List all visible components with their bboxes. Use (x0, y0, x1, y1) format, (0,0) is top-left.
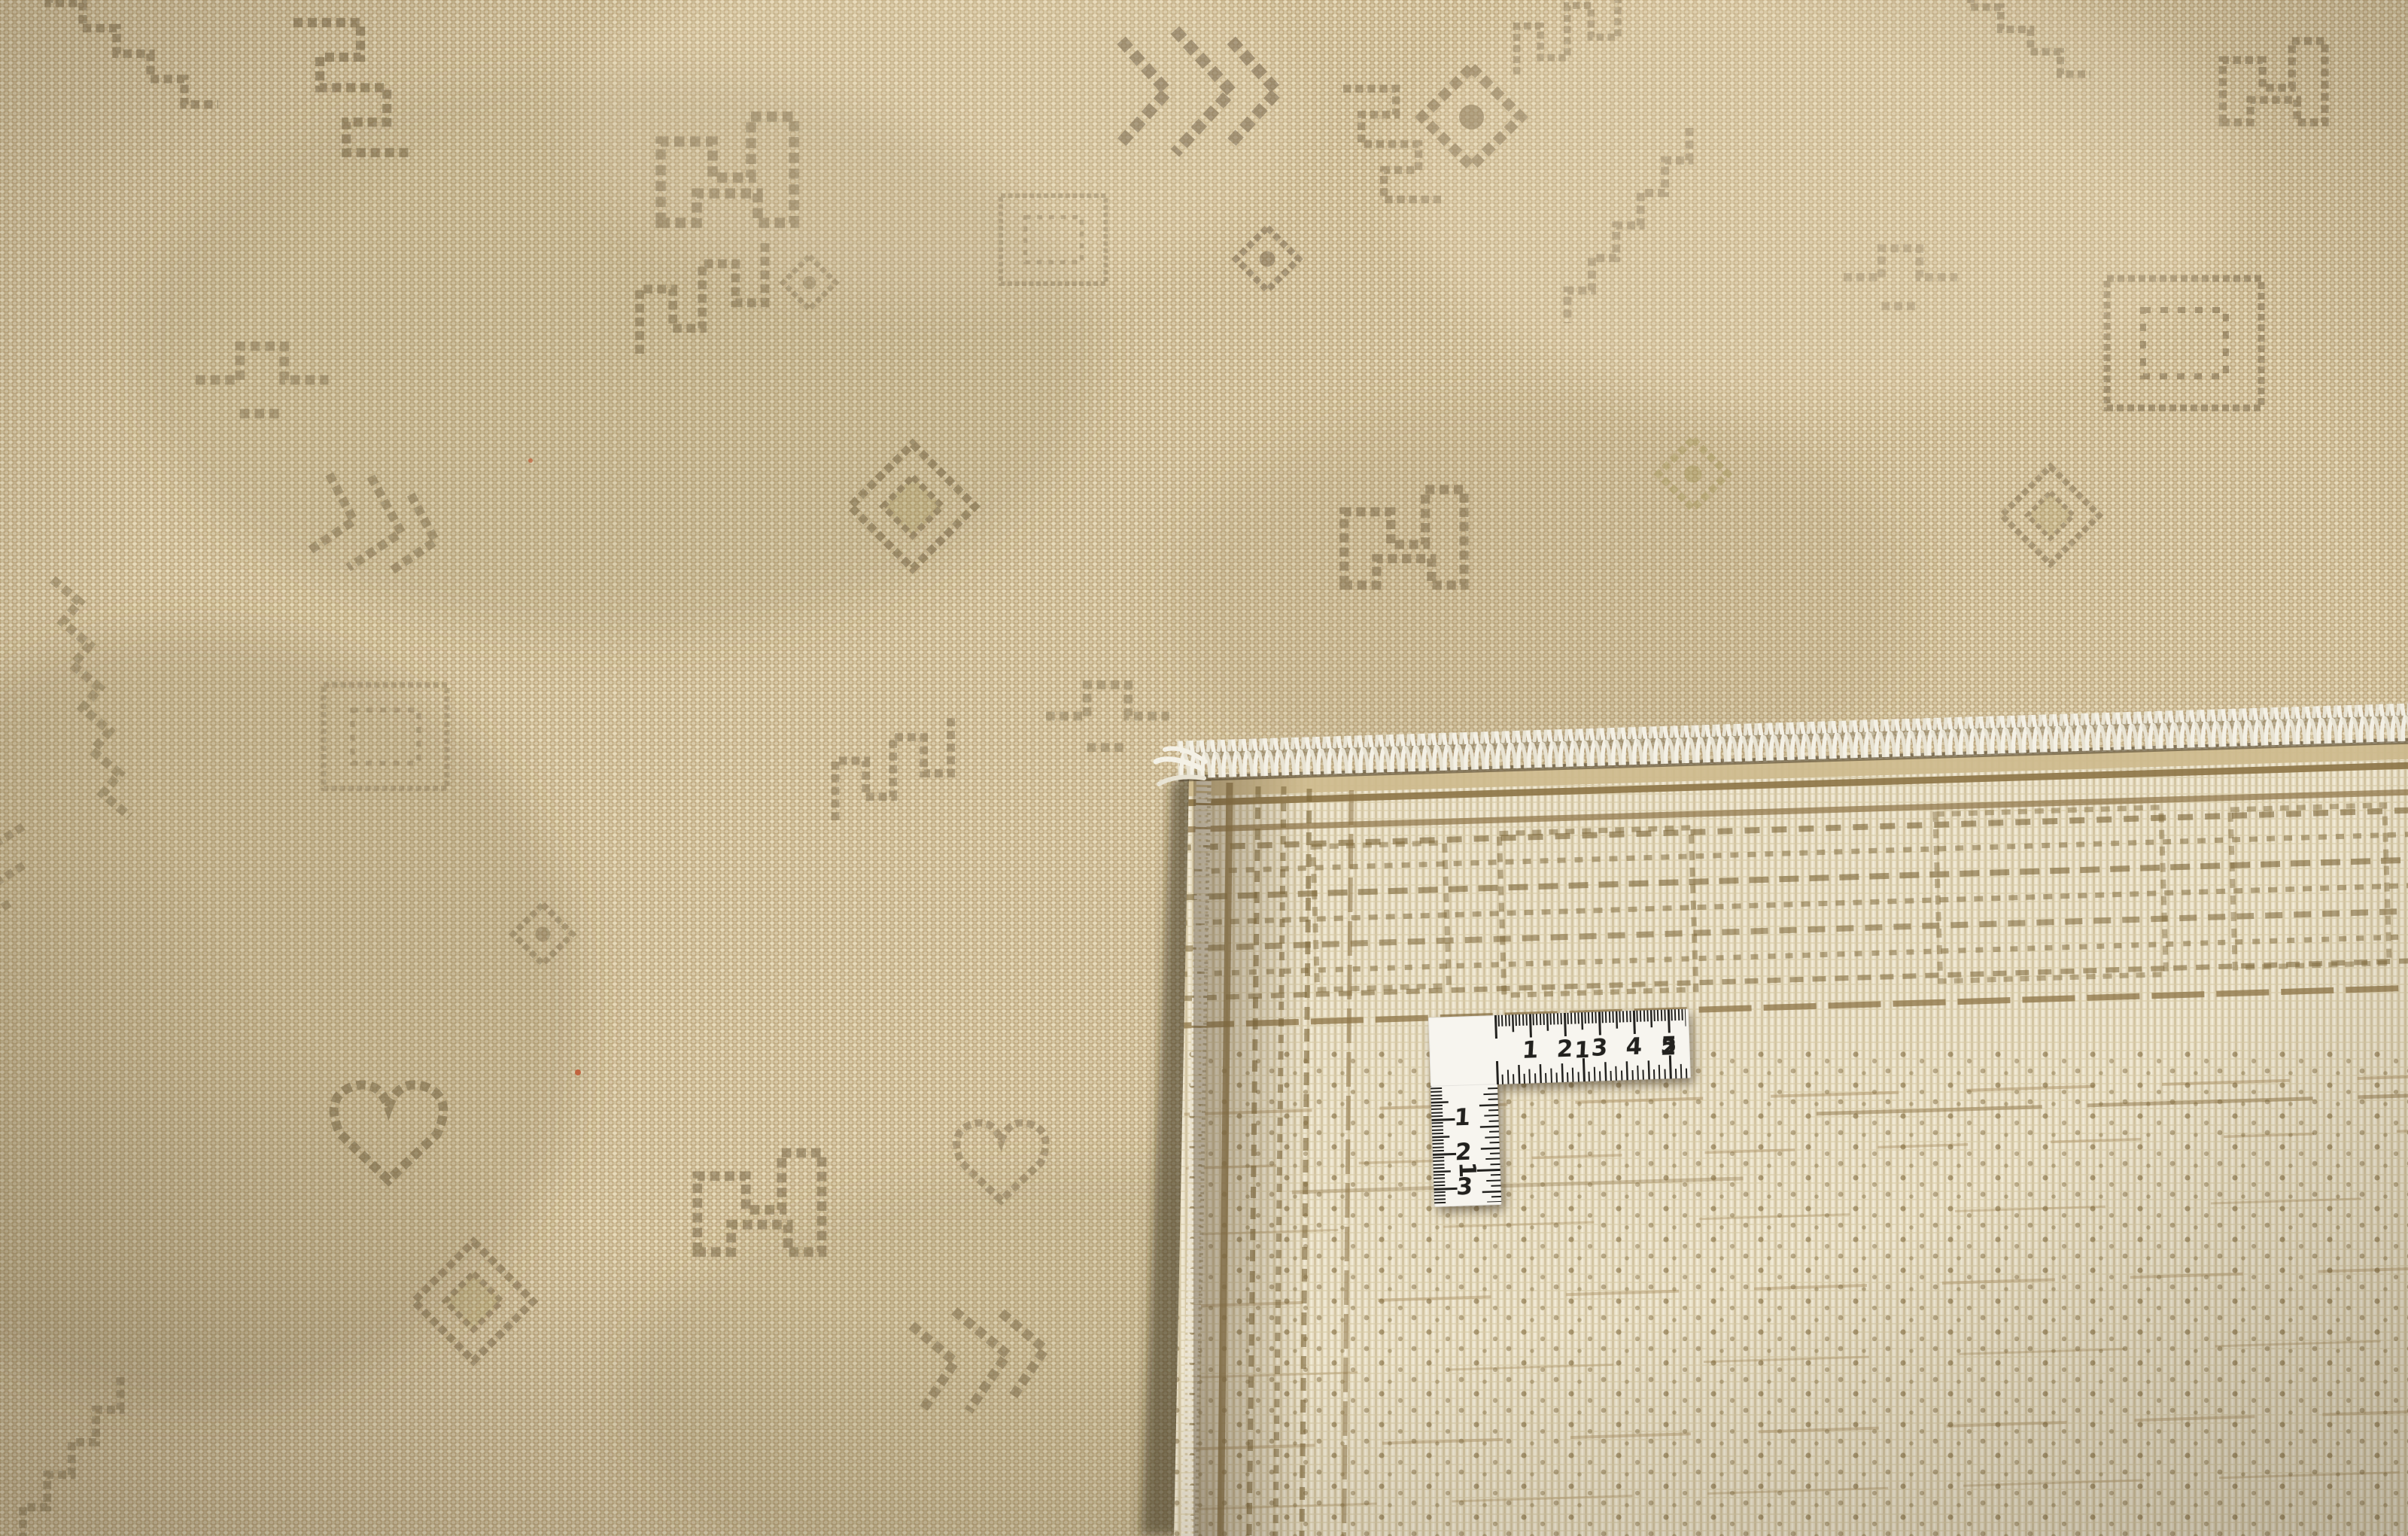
ruler-cm-major-ticks-vertical (1431, 1084, 1458, 1204)
ruler-cm-number: 2 (1556, 1038, 1573, 1062)
ruler-cm-number: 4 (1625, 1036, 1643, 1060)
ruler-cm-number: 2 (1455, 1141, 1472, 1165)
measuring-square: 1 2 3 1 1 2 3 4 5 1 2 (1428, 1009, 1695, 1207)
rug-photo-canvas (0, 0, 2408, 1536)
ruler-cm-number: 1 (1454, 1106, 1471, 1130)
ruler-cm-number: 1 (1522, 1039, 1539, 1063)
ruler-cm-number: 3 (1591, 1036, 1608, 1060)
ruler-inch-number: 1 (1573, 1039, 1590, 1063)
ruler-inch-number: 2 (1660, 1036, 1677, 1060)
rug-photo: 1 2 3 1 1 2 3 4 5 1 2 (0, 0, 2408, 1536)
ruler-inch-major-ticks-vertical (1474, 1082, 1501, 1203)
photo-vignette (0, 0, 2408, 1536)
ruler-inch-number: 1 (1455, 1161, 1478, 1178)
ruler-corner-block (1429, 1016, 1497, 1086)
ruler-cm-number: 3 (1456, 1176, 1473, 1200)
